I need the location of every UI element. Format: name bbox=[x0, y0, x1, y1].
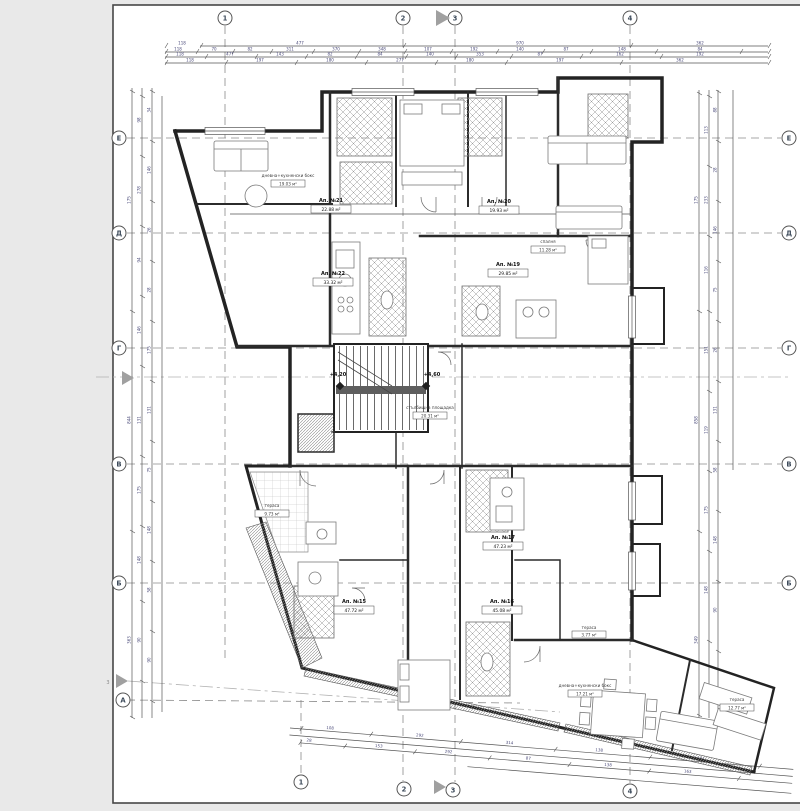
svg-text:370: 370 bbox=[332, 47, 340, 52]
svg-text:175: 175 bbox=[704, 506, 709, 514]
svg-text:90: 90 bbox=[137, 637, 142, 643]
svg-text:118: 118 bbox=[186, 58, 194, 63]
svg-text:477: 477 bbox=[296, 41, 304, 46]
wardrobe bbox=[402, 172, 462, 185]
svg-text:9.73 м²: 9.73 м² bbox=[264, 512, 280, 517]
wc-fixture bbox=[476, 304, 488, 320]
svg-text:28: 28 bbox=[713, 167, 718, 173]
apartment-label: Ап. №20 bbox=[487, 199, 511, 205]
apartment-area: 29.85 м² bbox=[498, 271, 517, 277]
svg-text:87: 87 bbox=[537, 52, 543, 57]
svg-text:75: 75 bbox=[147, 467, 152, 473]
room-label: тераса bbox=[582, 625, 597, 630]
room-label: тераса bbox=[730, 697, 745, 702]
apartment-area: 33.32 м² bbox=[323, 280, 342, 286]
svg-text:175: 175 bbox=[147, 346, 152, 354]
apartment-label: Ап. №21 bbox=[319, 198, 343, 204]
svg-text:87: 87 bbox=[563, 47, 569, 52]
svg-text:58: 58 bbox=[147, 587, 152, 593]
svg-text:2: 2 bbox=[402, 786, 407, 794]
svg-text:В: В bbox=[116, 461, 121, 469]
svg-text:20.31 м²: 20.31 м² bbox=[421, 414, 439, 419]
svg-text:82: 82 bbox=[327, 52, 333, 57]
apartment-area: 19.93 м² bbox=[489, 208, 508, 214]
svg-text:363: 363 bbox=[127, 636, 132, 644]
room-label: спалня bbox=[540, 239, 556, 244]
apartment-label: Ап. №15 bbox=[342, 599, 366, 605]
svg-text:118: 118 bbox=[176, 52, 184, 57]
svg-text:148: 148 bbox=[137, 556, 142, 564]
table-round bbox=[245, 185, 267, 207]
sofa bbox=[548, 136, 626, 164]
room-label: дневна+кухненски бокс bbox=[559, 683, 612, 688]
svg-text:Б: Б bbox=[116, 580, 121, 588]
sofa bbox=[556, 206, 622, 229]
svg-text:4: 4 bbox=[628, 15, 633, 23]
bed-double bbox=[398, 660, 450, 710]
svg-text:148: 148 bbox=[713, 536, 718, 544]
svg-text:477: 477 bbox=[226, 52, 234, 57]
svg-text:131: 131 bbox=[137, 416, 142, 424]
apartment-label: Ап. №16 bbox=[490, 599, 514, 605]
stair-treads-lower bbox=[336, 394, 426, 430]
apartment-area: 47.72 м² bbox=[344, 608, 363, 614]
svg-text:131: 131 bbox=[147, 406, 152, 414]
window bbox=[352, 89, 414, 96]
svg-text:362: 362 bbox=[676, 58, 684, 63]
svg-text:131: 131 bbox=[713, 406, 718, 414]
kitchen-counter bbox=[490, 478, 524, 530]
svg-text:70: 70 bbox=[211, 47, 217, 52]
apartment-label: Ап. №19 bbox=[496, 262, 520, 268]
svg-text:153: 153 bbox=[375, 743, 383, 749]
svg-text:119: 119 bbox=[704, 426, 709, 434]
apartment-area: 22.88 м² bbox=[321, 207, 340, 213]
svg-text:Б: Б bbox=[786, 580, 791, 588]
svg-text:+4,60: +4,60 bbox=[424, 372, 441, 378]
svg-text:17.21 м²: 17.21 м² bbox=[576, 692, 594, 697]
svg-text:+4,20: +4,20 bbox=[330, 372, 347, 378]
svg-text:192: 192 bbox=[696, 52, 704, 57]
svg-text:75: 75 bbox=[713, 287, 718, 293]
svg-text:148: 148 bbox=[704, 586, 709, 594]
svg-text:2: 2 bbox=[401, 15, 406, 23]
svg-text:146: 146 bbox=[713, 226, 718, 234]
apartment-label: Ап. №22 bbox=[321, 271, 345, 277]
window bbox=[629, 296, 636, 338]
svg-text:292: 292 bbox=[416, 732, 424, 738]
svg-text:146: 146 bbox=[137, 326, 142, 334]
svg-text:146: 146 bbox=[147, 166, 152, 174]
svg-text:90: 90 bbox=[713, 607, 718, 613]
svg-text:197: 197 bbox=[556, 58, 564, 63]
svg-text:197: 197 bbox=[256, 58, 264, 63]
bed-double bbox=[400, 100, 464, 166]
svg-text:143: 143 bbox=[276, 52, 284, 57]
svg-text:148: 148 bbox=[147, 526, 152, 534]
svg-text:Е: Е bbox=[787, 135, 792, 143]
svg-text:278: 278 bbox=[137, 186, 142, 194]
kitchen-counter bbox=[298, 562, 338, 596]
svg-text:11.28 м²: 11.28 м² bbox=[539, 248, 557, 253]
room-label: дневна+кухненски бокс bbox=[262, 173, 315, 178]
svg-text:34: 34 bbox=[147, 107, 152, 113]
window bbox=[476, 89, 538, 96]
kitchen-counter bbox=[332, 242, 360, 334]
svg-text:116: 116 bbox=[704, 266, 709, 274]
window bbox=[629, 482, 636, 520]
svg-text:А: А bbox=[120, 697, 126, 705]
svg-text:94: 94 bbox=[137, 257, 142, 263]
svg-text:970: 970 bbox=[516, 41, 524, 46]
svg-text:292: 292 bbox=[445, 749, 453, 755]
svg-text:311: 311 bbox=[286, 47, 294, 52]
svg-text:Д: Д bbox=[786, 230, 792, 238]
room-label: стълбищна площадка bbox=[406, 405, 454, 410]
bed-single bbox=[588, 236, 628, 284]
window bbox=[205, 128, 265, 135]
window bbox=[629, 552, 636, 590]
svg-text:175: 175 bbox=[137, 486, 142, 494]
svg-text:Д: Д bbox=[116, 230, 122, 238]
svg-text:26: 26 bbox=[713, 347, 718, 353]
svg-text:28: 28 bbox=[306, 737, 312, 742]
svg-text:Г: Г bbox=[787, 345, 792, 353]
svg-text:26: 26 bbox=[147, 227, 152, 233]
svg-text:12.77 м²: 12.77 м² bbox=[728, 706, 746, 711]
svg-text:175: 175 bbox=[127, 196, 132, 204]
svg-text:118: 118 bbox=[178, 41, 186, 46]
svg-text:Г: Г bbox=[117, 345, 122, 353]
svg-text:88: 88 bbox=[713, 107, 718, 113]
svg-text:844: 844 bbox=[127, 416, 132, 424]
svg-text:В: В bbox=[786, 461, 791, 469]
stair-treads-upper bbox=[336, 346, 426, 386]
svg-text:87: 87 bbox=[526, 755, 532, 760]
document-viewer: 118 477 970 362 118 70 82 311 370 348 10… bbox=[0, 0, 800, 811]
svg-text:3.77 м²: 3.77 м² bbox=[581, 633, 597, 638]
svg-text:349: 349 bbox=[694, 636, 699, 644]
floor-plan-drawing: 118 477 970 362 118 70 82 311 370 348 10… bbox=[0, 0, 800, 811]
apartment-area: 45.08 м² bbox=[492, 608, 511, 614]
svg-text:233: 233 bbox=[704, 196, 709, 204]
svg-text:82: 82 bbox=[247, 47, 253, 52]
svg-text:19.03 м²: 19.03 м² bbox=[279, 182, 297, 187]
svg-text:4: 4 bbox=[628, 788, 633, 796]
svg-text:138: 138 bbox=[595, 747, 603, 753]
svg-text:98: 98 bbox=[137, 117, 142, 123]
svg-text:3: 3 bbox=[106, 680, 109, 686]
svg-text:353: 353 bbox=[476, 52, 484, 57]
svg-text:140: 140 bbox=[426, 52, 434, 57]
kitchen-counter bbox=[516, 300, 556, 338]
svg-text:58: 58 bbox=[713, 467, 718, 473]
svg-text:3: 3 bbox=[453, 15, 458, 23]
svg-text:108: 108 bbox=[326, 725, 334, 731]
svg-text:362: 362 bbox=[696, 41, 704, 46]
svg-text:1: 1 bbox=[223, 15, 228, 23]
apartment-label: Ап. №17 bbox=[491, 535, 515, 541]
svg-text:1: 1 bbox=[299, 779, 304, 787]
room-label: тераса bbox=[265, 503, 280, 508]
apartment-area: 47.23 м² bbox=[493, 544, 512, 550]
svg-text:Е: Е bbox=[117, 135, 122, 143]
svg-text:140: 140 bbox=[516, 47, 524, 52]
desk bbox=[306, 522, 336, 544]
svg-text:163: 163 bbox=[684, 768, 692, 774]
svg-text:180: 180 bbox=[326, 58, 334, 63]
svg-text:858: 858 bbox=[694, 416, 699, 424]
svg-text:138: 138 bbox=[604, 762, 612, 768]
svg-text:162: 162 bbox=[616, 52, 624, 57]
svg-text:84: 84 bbox=[377, 52, 383, 57]
svg-text:28: 28 bbox=[147, 287, 152, 293]
wc-fixture bbox=[381, 291, 393, 309]
svg-text:113: 113 bbox=[704, 126, 709, 134]
svg-text:314: 314 bbox=[506, 740, 514, 746]
wc-fixture bbox=[481, 653, 493, 671]
svg-text:180: 180 bbox=[466, 58, 474, 63]
elevator-shaft bbox=[298, 414, 334, 452]
svg-text:90: 90 bbox=[147, 657, 152, 663]
svg-text:151: 151 bbox=[704, 346, 709, 354]
sofa bbox=[214, 141, 268, 171]
svg-text:3: 3 bbox=[451, 787, 456, 795]
svg-text:277: 277 bbox=[396, 58, 404, 63]
svg-text:175: 175 bbox=[694, 196, 699, 204]
